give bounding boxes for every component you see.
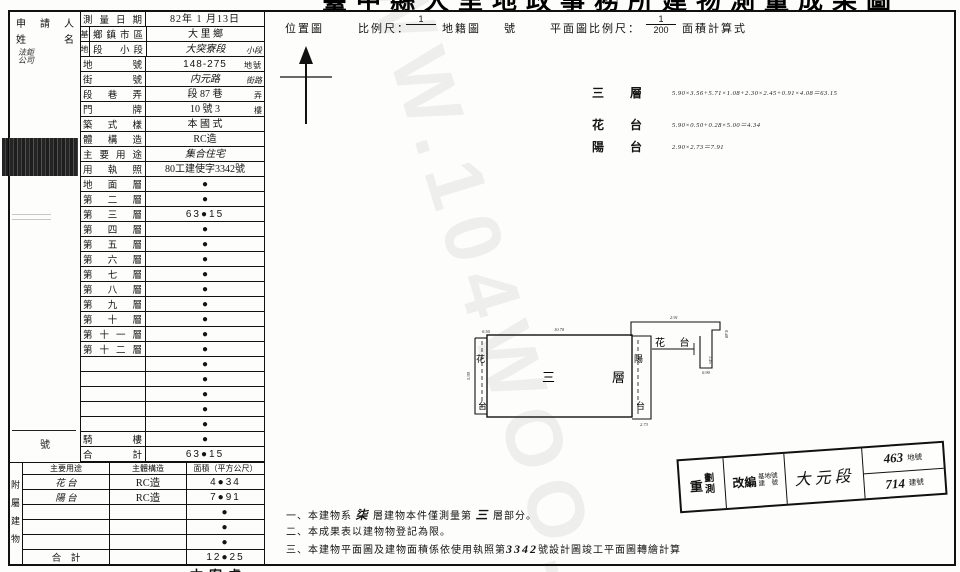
- row-value: 大 里 鄉: [147, 28, 264, 41]
- attached-structure: [110, 520, 187, 534]
- stamp-resurvey-cell: 重 劃 測: [679, 458, 727, 511]
- illegible-ink-stamp: [2, 138, 78, 176]
- faint-handwriting-mark: [12, 210, 67, 224]
- plan-dimension: 10.70: [554, 327, 565, 332]
- table-row: 主要用途集合住宅: [80, 147, 264, 162]
- applicant-name-handwritten: 法鉅公司: [18, 49, 34, 65]
- plan-balcony-bottom-label: 台: [636, 400, 645, 411]
- row-suffix: 樓: [254, 104, 262, 117]
- footnotes: 一、本建物系 柒 層建物本件僅測量第 三 層部分。二、本成果表以建物物登記為限。…: [286, 507, 681, 559]
- row-label: 街 號: [80, 72, 146, 86]
- row-suffix: 地號: [244, 59, 262, 72]
- row-label: 第 七 層: [80, 267, 146, 281]
- row-label: 合 計: [80, 447, 146, 461]
- row-label: 用 執 照: [80, 162, 146, 176]
- attached-row: ●: [23, 535, 264, 550]
- row-label: 第 五 層: [80, 237, 146, 251]
- table-row: 地 面 層●: [80, 177, 264, 192]
- row-label: 段 巷 弄: [80, 87, 146, 101]
- row-label: 鄉鎮市區: [90, 27, 147, 41]
- survey-table: 申 請 人 姓 名 法鉅公司 號 測 量 日 期82年 1 月13日基鄉鎮市區大…: [10, 12, 265, 564]
- row-value: ●: [146, 223, 264, 236]
- row-label: [80, 372, 146, 386]
- scale-fraction: 1: [406, 14, 436, 35]
- attached-structure: [110, 505, 187, 519]
- row-value: 63●15: [146, 208, 264, 221]
- footnote-line: 二、本成果表以建物物登記為限。: [286, 525, 681, 541]
- row-label: 騎 樓: [80, 432, 146, 446]
- plan-scale-label: 平面圖比例尺：: [550, 20, 641, 36]
- cadastral-map-label: 地籍圖: [442, 20, 481, 36]
- table-row: 第 三 層63●15: [80, 207, 264, 222]
- attached-use: [23, 505, 110, 519]
- row-label: 主要用途: [80, 147, 146, 161]
- plan-flower-top-label: 花: [476, 353, 485, 364]
- attached-area: 12●25: [187, 552, 264, 563]
- footnote-line: 一、本建物系 柒 層建物本件僅測量第 三 層部分。: [286, 507, 681, 525]
- row-value: 80工建使字3342號: [146, 163, 264, 176]
- attached-row: 花 台RC造4●34: [23, 475, 264, 490]
- plan-balcony-top-label: 陽: [634, 354, 643, 364]
- row-value: 63●15: [146, 448, 264, 461]
- row-value: 10 號 3樓: [146, 103, 264, 116]
- applicant-column: 申 請 人 姓 名 法鉅公司 號: [10, 12, 81, 462]
- attached-row: 合 計12●25: [23, 550, 264, 565]
- row-value: ●: [146, 253, 264, 266]
- number-suffix-label: 號: [504, 20, 517, 36]
- attached-area: ●: [187, 522, 264, 533]
- bottom-cropped-text: 本案處: [190, 565, 247, 572]
- row-prefix: 基: [80, 27, 90, 41]
- formula-floor3: 三層 5.90×3.56+5.71×1.08+2.30×2.45+0.91×4.…: [592, 84, 837, 102]
- attached-area: ●: [187, 537, 264, 548]
- row-value: ●: [146, 433, 264, 446]
- row-label: 第 三 層: [80, 207, 146, 221]
- table-row: 地 號148-275地號: [80, 57, 264, 72]
- area-calc-label: 面積計算式: [682, 20, 747, 36]
- table-row: 地段 小段大突寮段小段: [80, 42, 264, 57]
- table-row: 第 七 層●: [80, 267, 264, 282]
- plan-dimension: 5.90: [466, 371, 471, 380]
- attached-structure: [110, 535, 187, 549]
- row-value: 本 國 式: [146, 118, 264, 131]
- table-row: 第 十 層●: [80, 312, 264, 327]
- table-row: ●: [80, 372, 264, 387]
- row-label: 測 量 日 期: [80, 12, 146, 26]
- table-row: 體 構 造RC造: [80, 132, 264, 147]
- row-label: 第 四 層: [80, 222, 146, 236]
- attached-use: 合 計: [23, 550, 110, 564]
- row-label: 第 九 層: [80, 297, 146, 311]
- attached-side-label: 附屬建物: [10, 463, 23, 565]
- row-label: [80, 357, 146, 371]
- row-label: 段 小段: [90, 42, 147, 56]
- row-value: 内元路街路: [146, 73, 264, 86]
- table-row: 騎 樓●: [80, 432, 264, 447]
- table-row: ●: [80, 402, 264, 417]
- plan-dimension: 2.73: [640, 422, 649, 427]
- attached-header: 主要用途: [23, 463, 110, 474]
- plan-dimension: 0.50: [482, 329, 491, 334]
- plan-flower-bottom-label: 台: [478, 400, 487, 411]
- row-value: 集合住宅: [146, 148, 264, 161]
- attached-area: ●: [187, 507, 264, 518]
- attached-buildings-section: 附屬建物 主要用途主體構造面積（平方公尺）花 台RC造4●34陽 台RC造7●9…: [10, 462, 264, 565]
- plan-dimension: 2.91: [670, 315, 678, 320]
- plan-scale-fraction: 1 200: [646, 14, 676, 35]
- number-cell: 號: [10, 436, 80, 451]
- row-value: 82年 1 月13日: [146, 13, 264, 26]
- attached-use: 陽 台: [23, 490, 110, 504]
- row-label: 第 十 層: [80, 312, 146, 326]
- divider: [12, 430, 76, 431]
- row-suffix: 街路: [246, 74, 262, 87]
- table-row: 街 號内元路街路: [80, 72, 264, 87]
- formula-flowerbed: 花台 5.90×0.50+0.28×5.00＝4.34: [592, 116, 761, 134]
- stamp-numbers-cell: 463 地號 714 建號: [861, 443, 945, 499]
- table-row: ●: [80, 357, 264, 372]
- row-value: ●: [146, 298, 264, 311]
- row-value: ●: [146, 388, 264, 401]
- row-value: ●: [146, 193, 264, 206]
- row-value: ●: [146, 283, 264, 296]
- row-label: 體 構 造: [80, 132, 146, 146]
- row-label: 地 面 層: [80, 177, 146, 191]
- row-value: ●: [146, 418, 264, 431]
- plan-dimension: 1.45: [708, 356, 713, 365]
- applicant-label: 申 請 人: [16, 15, 74, 30]
- plan-ext-flower-label: 花 台: [655, 336, 696, 349]
- table-row: ●: [80, 417, 264, 432]
- plan-dimension: 0.90: [702, 370, 711, 375]
- table-row: 第 六 層●: [80, 252, 264, 267]
- attached-header-row: 主要用途主體構造面積（平方公尺）: [23, 463, 264, 475]
- table-row: 第 五 層●: [80, 237, 264, 252]
- table-row: 第 九 層●: [80, 297, 264, 312]
- attached-structure: [110, 550, 187, 564]
- applicant-name-label: 姓 名: [16, 31, 74, 46]
- plan-floor3-label: 三 層: [542, 370, 647, 385]
- row-value: 大突寮段小段: [147, 43, 264, 56]
- row-label: [80, 417, 146, 431]
- row-label: [80, 402, 146, 416]
- stamp-section-name: 大元段: [784, 449, 864, 504]
- row-label: 第 八 層: [80, 282, 146, 296]
- table-row: 段 巷 弄段 87 巷弄: [80, 87, 264, 102]
- row-value: ●: [146, 313, 264, 326]
- row-label: 第十二層: [80, 342, 146, 356]
- row-value: 148-275地號: [146, 58, 264, 71]
- attached-use: [23, 535, 110, 549]
- floor-plan: 三 層 花 台 陽 台 花 台 10.705.902.910.481.450.9…: [462, 310, 752, 435]
- table-row: ●: [80, 387, 264, 402]
- attached-rows: 主要用途主體構造面積（平方公尺）花 台RC造4●34陽 台RC造7●91●●●合…: [23, 463, 264, 565]
- row-label: 第 六 層: [80, 252, 146, 266]
- form-frame: 申 請 人 姓 名 法鉅公司 號 測 量 日 期82年 1 月13日基鄉鎮市區大…: [8, 10, 956, 566]
- attached-header: 面積（平方公尺）: [187, 463, 264, 474]
- attached-structure: RC造: [110, 490, 187, 504]
- row-value: 段 87 巷弄: [146, 88, 264, 101]
- row-value: ●: [146, 268, 264, 281]
- table-row: 第 八 層●: [80, 282, 264, 297]
- row-value: ●: [146, 403, 264, 416]
- table-row: 基鄉鎮市區大 里 鄉: [80, 27, 264, 42]
- row-value: ●: [146, 343, 264, 356]
- footnote-line: 三、本建物平面圖及建物面積係依使用執照第3342號設計圖竣工平面圖轉繪計算: [286, 541, 681, 559]
- location-map-label: 位置圖: [285, 20, 324, 36]
- scale-label: 比例尺：: [358, 20, 410, 36]
- attached-use: 花 台: [23, 475, 110, 489]
- row-label: 第 二 層: [80, 192, 146, 206]
- resurvey-stamp-box: 重 劃 測 改編 基地號 建 號 大元段 463 地號: [676, 441, 947, 514]
- survey-rows: 測 量 日 期82年 1 月13日基鄉鎮市區大 里 鄉地段 小段大突寮段小段地 …: [80, 12, 264, 462]
- table-row: 測 量 日 期82年 1 月13日: [80, 12, 264, 27]
- north-arrow-icon: [278, 44, 334, 128]
- row-prefix: 地: [80, 42, 90, 56]
- row-suffix: 小段: [246, 44, 262, 57]
- attached-header: 主體構造: [110, 463, 187, 474]
- row-label: 築 式 樣: [80, 117, 146, 131]
- attached-area: 7●91: [187, 492, 264, 503]
- table-row: 第 二 層●: [80, 192, 264, 207]
- attached-area: 4●34: [187, 477, 264, 488]
- row-label: 門 牌: [80, 102, 146, 116]
- row-value: ●: [146, 238, 264, 251]
- table-row: 第十二層●: [80, 342, 264, 357]
- attached-row: ●: [23, 505, 264, 520]
- table-row: 用 執 照80工建使字3342號: [80, 162, 264, 177]
- table-row: 合 計63●15: [80, 447, 264, 462]
- attached-row: 陽 台RC造7●91: [23, 490, 264, 505]
- table-row: 第 四 層●: [80, 222, 264, 237]
- formula-balcony: 陽台 2.90×2.73＝7.91: [592, 138, 724, 156]
- row-value: ●: [146, 373, 264, 386]
- row-label: 第十一層: [80, 327, 146, 341]
- row-value: ●: [146, 328, 264, 341]
- scanned-survey-document: 臺中縣大里地政事務所建物測量成果圖 申 請 人 姓 名 法鉅公司 號 測 量 日…: [0, 0, 960, 572]
- plan-dimension: 0.48: [724, 330, 729, 339]
- table-row: 第十一層●: [80, 327, 264, 342]
- attached-row: ●: [23, 520, 264, 535]
- row-label: [80, 387, 146, 401]
- stamp-renumber-cell: 改編 基地號 建 號: [723, 454, 787, 508]
- row-label: 地 號: [80, 57, 146, 71]
- row-value: ●: [146, 178, 264, 191]
- row-suffix: 弄: [254, 89, 262, 102]
- table-row: 門 牌10 號 3樓: [80, 102, 264, 117]
- row-value: ●: [146, 358, 264, 371]
- row-value: RC造: [146, 133, 264, 146]
- table-row: 築 式 樣本 國 式: [80, 117, 264, 132]
- attached-structure: RC造: [110, 475, 187, 489]
- attached-use: [23, 520, 110, 534]
